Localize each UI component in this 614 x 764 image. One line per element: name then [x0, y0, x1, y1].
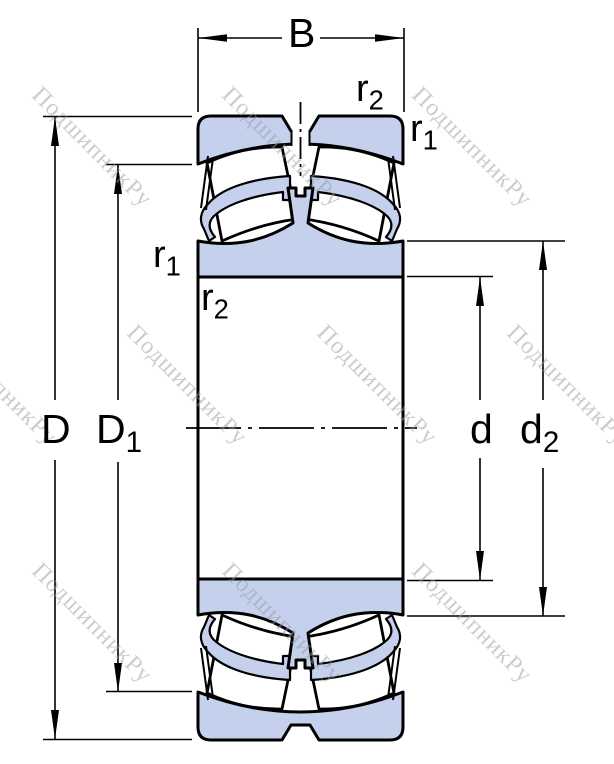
arrowhead — [114, 663, 122, 692]
fillet-label-r2-top: r2 — [356, 70, 384, 108]
arrowhead — [114, 165, 122, 194]
arrowhead — [539, 241, 547, 270]
fillet-label-r1-left: r1 — [153, 236, 181, 274]
arrowhead — [51, 117, 59, 146]
arrowhead — [476, 551, 484, 580]
arrowhead — [539, 587, 547, 616]
arrowhead — [51, 710, 59, 739]
arrowhead — [375, 34, 404, 42]
arrowhead — [198, 34, 227, 42]
dim-label-B: B — [288, 13, 315, 54]
arrowhead — [476, 277, 484, 306]
dim-label-D1: D1 — [96, 409, 142, 450]
bearing-cross-section-drawing — [0, 0, 614, 764]
dim-label-d: d — [470, 409, 493, 450]
dim-label-D: D — [41, 409, 71, 450]
fillet-label-r1-top: r1 — [410, 110, 438, 148]
dim-label-d2: d2 — [520, 409, 559, 450]
bearing-drawing-page: B r2 r1 r1 r2 D D1 d d2 ПодшипникРуПодши… — [0, 0, 614, 764]
bearing-lower-half — [198, 579, 403, 740]
fillet-label-r2-left: r2 — [201, 279, 229, 317]
